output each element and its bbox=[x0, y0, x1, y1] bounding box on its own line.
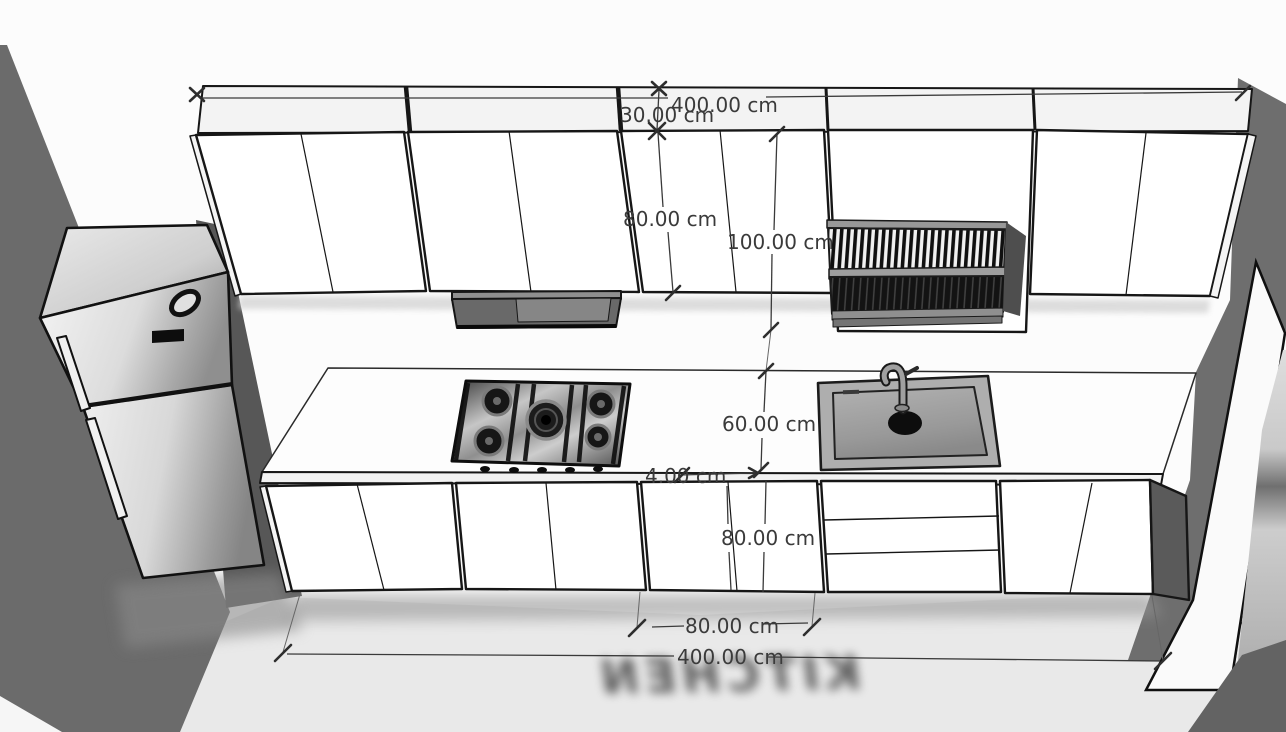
sink-drain bbox=[888, 411, 922, 435]
dimension-label-upper-depth[interactable]: 30.00 cm bbox=[620, 104, 714, 126]
kitchen-sink[interactable] bbox=[818, 376, 1000, 470]
range-hood[interactable] bbox=[452, 291, 621, 328]
dimension-label-open-cabinet-height[interactable]: 100.00 cm bbox=[727, 231, 834, 253]
dimension-label-upper-height[interactable]: 80.00 cm bbox=[623, 208, 717, 230]
dimension-label-counter-depth[interactable]: 60.00 cm bbox=[722, 413, 816, 435]
drawer-unit bbox=[821, 481, 1001, 592]
upper-cabinet-row[interactable] bbox=[190, 86, 1256, 332]
kitchen-3d-viewport[interactable]: 400.00 cm 30.00 cm 80.00 cm 100.00 cm 60… bbox=[0, 0, 1286, 732]
upper-cabinet-2 bbox=[408, 131, 639, 292]
dimension-label-counter-thickness[interactable]: 4.00 cm bbox=[645, 465, 726, 487]
dimension-label-unit-width[interactable]: 80.00 cm bbox=[685, 615, 779, 637]
gas-cooktop[interactable] bbox=[452, 381, 630, 473]
base-cabinet-1 bbox=[266, 483, 462, 591]
floor-room-label: KITCHEN bbox=[549, 645, 907, 706]
dish-rack[interactable] bbox=[827, 220, 1026, 327]
base-cabinet-5 bbox=[1000, 480, 1153, 594]
dimension-label-base-height[interactable]: 80.00 cm bbox=[721, 527, 815, 549]
fridge-display bbox=[152, 329, 184, 343]
base-right-side-shadow bbox=[1150, 480, 1189, 600]
